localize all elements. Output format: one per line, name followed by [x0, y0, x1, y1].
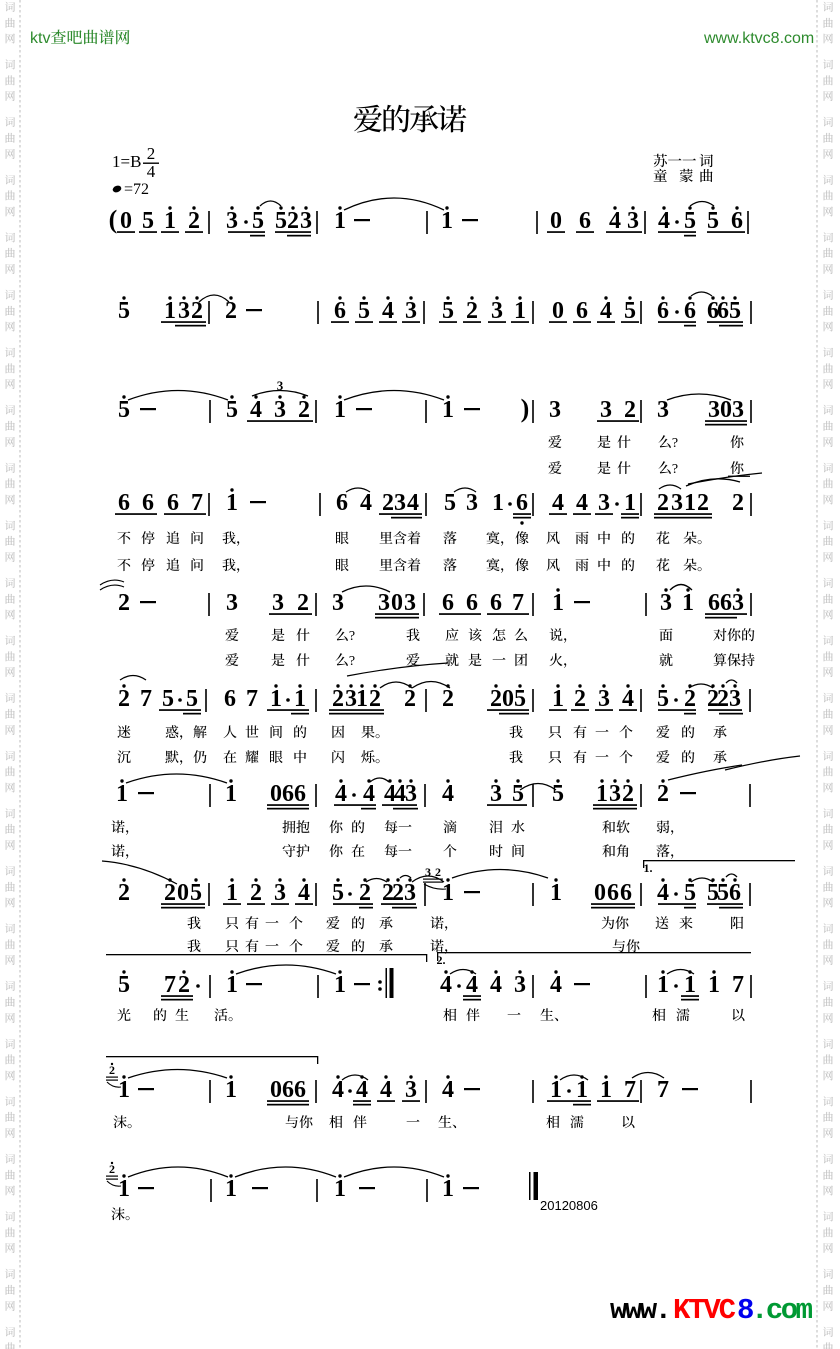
svg-text:曲: 曲	[5, 188, 16, 204]
svg-text:曲: 曲	[823, 72, 834, 88]
svg-text:1: 1	[514, 298, 526, 324]
svg-text:3: 3	[272, 590, 284, 616]
svg-text:网: 网	[5, 779, 16, 795]
svg-text:词: 词	[5, 287, 16, 303]
svg-text:像: 像	[515, 555, 529, 575]
svg-text:曲: 曲	[823, 1052, 834, 1068]
svg-text:一: 一	[265, 913, 279, 933]
svg-text:6: 6	[516, 490, 528, 516]
svg-text:2: 2	[382, 490, 394, 516]
svg-text:3: 3	[405, 781, 417, 807]
svg-text:诺，: 诺，	[111, 841, 139, 861]
svg-text:以: 以	[621, 1112, 635, 1132]
svg-text:2: 2	[191, 298, 203, 324]
svg-text:寞，: 寞，	[486, 528, 514, 548]
svg-text:个: 个	[289, 913, 303, 933]
svg-text:.com: .com	[751, 1294, 813, 1327]
svg-text:4: 4	[657, 880, 669, 906]
svg-text:词: 词	[5, 1209, 16, 1225]
svg-text:词: 词	[5, 460, 16, 476]
svg-text:2: 2	[287, 208, 299, 234]
svg-text:曲: 曲	[5, 303, 16, 319]
svg-text:以: 以	[731, 1005, 745, 1025]
svg-text:7: 7	[191, 490, 203, 516]
svg-text:词: 词	[5, 345, 16, 361]
svg-text:怎: 怎	[492, 625, 506, 645]
svg-text:4: 4	[335, 781, 347, 807]
svg-text:5: 5	[684, 880, 696, 906]
svg-text:3: 3	[732, 397, 744, 423]
svg-text:曲: 曲	[5, 360, 16, 376]
svg-text:为你: 为你	[601, 913, 629, 933]
svg-text:和角: 和角	[602, 841, 630, 861]
svg-text:闪: 闪	[331, 747, 345, 767]
svg-text:1: 1	[708, 972, 720, 998]
svg-text:有: 有	[573, 747, 587, 767]
svg-text:的: 的	[681, 722, 695, 742]
svg-text:网: 网	[823, 1183, 834, 1199]
svg-text:3: 3	[466, 490, 478, 516]
svg-text:光: 光	[117, 1005, 131, 1025]
svg-text:词: 词	[823, 460, 834, 476]
svg-text:一: 一	[595, 747, 609, 767]
svg-text:5: 5	[190, 880, 202, 906]
svg-text:面: 面	[659, 625, 673, 645]
svg-text:3: 3	[549, 397, 561, 423]
svg-text:3: 3	[178, 298, 190, 324]
svg-text:5: 5	[684, 208, 696, 234]
svg-text:网: 网	[823, 376, 834, 392]
svg-text:2: 2	[298, 397, 310, 423]
svg-text:5: 5	[657, 686, 669, 712]
svg-text:4: 4	[147, 162, 156, 181]
svg-text:网: 网	[5, 664, 16, 680]
svg-text:承: 承	[713, 722, 727, 742]
svg-text:网: 网	[823, 31, 834, 47]
svg-text:词: 词	[823, 1036, 834, 1052]
svg-text:诺，: 诺，	[430, 936, 458, 956]
svg-text:爱: 爱	[326, 936, 340, 956]
svg-text:5: 5	[442, 298, 454, 324]
svg-text:我，: 我，	[222, 555, 250, 575]
svg-text:3: 3	[274, 880, 286, 906]
svg-text:网: 网	[823, 261, 834, 277]
svg-text:3: 3	[405, 298, 417, 324]
svg-text:3: 3	[425, 865, 431, 879]
svg-text:曲: 曲	[5, 764, 16, 780]
svg-text:3: 3	[729, 686, 741, 712]
svg-text:曲: 曲	[823, 188, 834, 204]
svg-text:5: 5	[252, 208, 264, 234]
svg-text:词: 词	[5, 633, 16, 649]
svg-text:词: 词	[823, 748, 834, 764]
svg-text:承: 承	[713, 747, 727, 767]
svg-text:5: 5	[186, 686, 198, 712]
svg-text:生、: 生、	[540, 1005, 568, 1025]
svg-text:0: 0	[550, 208, 562, 234]
svg-text:6: 6	[294, 1077, 306, 1103]
svg-text:的: 的	[293, 722, 307, 742]
svg-text:个: 个	[619, 747, 633, 767]
svg-text:4: 4	[250, 397, 262, 423]
svg-text:网: 网	[823, 434, 834, 450]
svg-text:2: 2	[732, 490, 744, 516]
svg-text:1: 1	[624, 490, 636, 516]
svg-text:是: 是	[597, 458, 611, 478]
svg-text:爱: 爱	[326, 913, 340, 933]
svg-text:5: 5	[729, 298, 741, 324]
svg-text:2: 2	[435, 865, 441, 879]
svg-text:爱: 爱	[548, 458, 562, 478]
svg-text:词: 词	[5, 1266, 16, 1282]
svg-text:1: 1	[116, 781, 128, 807]
svg-text:0: 0	[594, 880, 606, 906]
svg-text:1: 1	[226, 490, 238, 516]
svg-text:承: 承	[379, 913, 393, 933]
svg-text:网: 网	[5, 1240, 16, 1256]
svg-text:3: 3	[490, 781, 502, 807]
svg-text:曲: 曲	[823, 1340, 834, 1349]
svg-text:来: 来	[679, 913, 693, 933]
svg-text:曲: 曲	[5, 245, 16, 261]
svg-text:我: 我	[187, 913, 201, 933]
svg-text:曲: 曲	[5, 72, 16, 88]
svg-text:词: 词	[5, 1036, 16, 1052]
svg-text:6: 6	[224, 686, 236, 712]
svg-text:团: 团	[514, 650, 528, 670]
svg-text:6: 6	[708, 590, 720, 616]
svg-text:曲: 曲	[823, 15, 834, 31]
svg-text:是: 是	[271, 650, 285, 670]
svg-text:6: 6	[167, 490, 179, 516]
svg-text:3: 3	[598, 490, 610, 516]
svg-text:曲: 曲	[5, 1052, 16, 1068]
svg-text:词: 词	[5, 57, 16, 73]
svg-text:词: 词	[5, 0, 16, 15]
svg-text:么: 么	[514, 625, 528, 645]
svg-text:曲: 曲	[5, 533, 16, 549]
svg-text:朵。: 朵。	[683, 555, 711, 575]
svg-text:3: 3	[274, 397, 286, 423]
svg-text:词: 词	[823, 402, 834, 418]
svg-text:1: 1	[684, 972, 696, 998]
svg-text:在: 在	[223, 747, 237, 767]
svg-text:滴: 滴	[443, 817, 457, 837]
svg-text:KTVC: KTVC	[673, 1294, 736, 1327]
svg-text:诺，: 诺，	[111, 817, 139, 837]
svg-text:词: 词	[5, 402, 16, 418]
svg-text:1: 1	[226, 880, 238, 906]
svg-text:网: 网	[5, 376, 16, 392]
svg-text:5: 5	[332, 880, 344, 906]
svg-text:词: 词	[823, 0, 834, 15]
svg-text:沫。: 沫。	[113, 1112, 141, 1132]
svg-text:词: 词	[5, 748, 16, 764]
svg-text:曲: 曲	[5, 476, 16, 492]
svg-text:应: 应	[445, 625, 459, 645]
svg-text:词: 词	[823, 345, 834, 361]
svg-text:词: 词	[823, 921, 834, 937]
svg-text:曲: 曲	[823, 303, 834, 319]
svg-text:3: 3	[598, 686, 610, 712]
svg-text:的: 的	[681, 747, 695, 767]
svg-text:像: 像	[515, 528, 529, 548]
svg-text:1: 1	[596, 781, 608, 807]
svg-text:网: 网	[5, 88, 16, 104]
svg-text:3: 3	[332, 590, 344, 616]
svg-text:6: 6	[717, 298, 729, 324]
svg-text:6: 6	[731, 208, 743, 234]
svg-text:3: 3	[394, 490, 406, 516]
svg-text:相: 相	[546, 1112, 560, 1132]
svg-text:6: 6	[684, 298, 696, 324]
svg-text:曲: 曲	[5, 130, 16, 146]
svg-text:1: 1	[682, 590, 694, 616]
svg-text:眼: 眼	[269, 747, 283, 767]
svg-text:相: 相	[443, 1005, 457, 1025]
svg-text:0: 0	[120, 208, 132, 234]
svg-text:沫。: 沫。	[111, 1204, 139, 1224]
svg-text:7: 7	[140, 686, 152, 712]
svg-text:词: 词	[823, 172, 834, 188]
svg-text:停: 停	[141, 528, 155, 548]
svg-text:网: 网	[5, 319, 16, 335]
svg-text:曲: 曲	[5, 15, 16, 31]
svg-text:6: 6	[282, 1077, 294, 1103]
svg-text:1: 1	[334, 397, 346, 423]
svg-text:个: 个	[619, 722, 633, 742]
svg-text:1: 1	[576, 1077, 588, 1103]
svg-text:5: 5	[707, 208, 719, 234]
svg-text:词: 词	[823, 805, 834, 821]
svg-text:耀: 耀	[245, 747, 259, 767]
svg-text:么?: 么?	[658, 432, 678, 452]
svg-text:3: 3	[671, 490, 683, 516]
svg-text:4: 4	[622, 686, 634, 712]
svg-text:曲: 曲	[5, 936, 16, 952]
svg-text:2: 2	[359, 880, 371, 906]
svg-text:曲: 曲	[823, 1282, 834, 1298]
svg-text:网: 网	[5, 146, 16, 162]
svg-text:词: 词	[5, 921, 16, 937]
svg-text:3: 3	[514, 972, 526, 998]
svg-text:1: 1	[492, 490, 504, 516]
svg-text:词: 词	[823, 229, 834, 245]
svg-text:6: 6	[576, 298, 588, 324]
svg-text:词: 词	[5, 1324, 16, 1340]
svg-text:说，: 说，	[549, 625, 577, 645]
svg-text:拥抱: 拥抱	[282, 817, 310, 837]
svg-text:1: 1	[334, 208, 346, 234]
svg-text:的: 的	[351, 936, 365, 956]
svg-text:只: 只	[225, 913, 239, 933]
svg-text:有: 有	[245, 913, 259, 933]
svg-text:2: 2	[118, 880, 130, 906]
svg-text:6: 6	[579, 208, 591, 234]
svg-text:1: 1	[550, 1077, 562, 1103]
svg-text:3: 3	[277, 378, 284, 393]
svg-text:6: 6	[607, 880, 619, 906]
svg-text:5: 5	[444, 490, 456, 516]
svg-text:曲: 曲	[5, 994, 16, 1010]
svg-text:网: 网	[5, 952, 16, 968]
svg-text:曲: 曲	[823, 130, 834, 146]
svg-text:5: 5	[717, 880, 729, 906]
svg-text:3: 3	[404, 590, 416, 616]
svg-text:1: 1	[442, 880, 454, 906]
svg-text:0: 0	[552, 298, 564, 324]
svg-text:网: 网	[823, 1240, 834, 1256]
svg-text:1: 1	[356, 686, 368, 712]
svg-text:4: 4	[332, 1077, 344, 1103]
svg-text:1: 1	[226, 972, 238, 998]
svg-text:网: 网	[823, 779, 834, 795]
svg-text:我，: 我，	[222, 528, 250, 548]
svg-text:4: 4	[658, 208, 670, 234]
svg-text:相: 相	[652, 1005, 666, 1025]
svg-text:网: 网	[823, 1067, 834, 1083]
svg-text:泪: 泪	[489, 817, 503, 837]
svg-text:1: 1	[334, 1176, 346, 1202]
svg-text:1: 1	[225, 781, 237, 807]
svg-text:曲: 曲	[823, 533, 834, 549]
svg-text:网: 网	[823, 837, 834, 853]
svg-text:不: 不	[117, 555, 131, 575]
svg-text:词: 词	[823, 863, 834, 879]
svg-text:曲: 曲	[5, 821, 16, 837]
svg-text:我: 我	[509, 747, 523, 767]
svg-text:3: 3	[609, 781, 621, 807]
svg-text:曲: 曲	[823, 591, 834, 607]
svg-text:4: 4	[363, 781, 375, 807]
svg-text:网: 网	[823, 664, 834, 680]
svg-text:曲: 曲	[823, 1167, 834, 1183]
svg-text:2: 2	[118, 686, 130, 712]
svg-text:一: 一	[595, 722, 609, 742]
svg-text:5: 5	[142, 208, 154, 234]
svg-text:爱: 爱	[225, 650, 239, 670]
svg-text:曲: 曲	[823, 418, 834, 434]
svg-text:时: 时	[489, 841, 503, 861]
svg-text:什: 什	[296, 625, 310, 645]
svg-text:与你: 与你	[285, 1112, 313, 1132]
svg-text:网: 网	[823, 1125, 834, 1141]
svg-text:2: 2	[717, 686, 729, 712]
svg-text:1: 1	[657, 972, 669, 998]
svg-text:不: 不	[117, 528, 131, 548]
svg-text:3: 3	[404, 880, 416, 906]
svg-text:网: 网	[5, 1298, 16, 1314]
svg-text:你: 你	[329, 817, 343, 837]
svg-text:3: 3	[657, 397, 669, 423]
svg-text:你: 你	[329, 841, 343, 861]
svg-text:2: 2	[369, 686, 381, 712]
svg-text:网: 网	[823, 895, 834, 911]
svg-text:曲: 曲	[5, 648, 16, 664]
svg-text:伴: 伴	[353, 1112, 367, 1132]
svg-text:算保持: 算保持	[713, 650, 755, 670]
svg-text:网: 网	[5, 434, 16, 450]
svg-text:1: 1	[550, 880, 562, 906]
svg-text:爱: 爱	[656, 747, 670, 767]
svg-text:3: 3	[660, 590, 672, 616]
svg-text:0: 0	[720, 397, 732, 423]
svg-text:里含着: 里含着	[379, 555, 421, 575]
svg-text:个: 个	[289, 936, 303, 956]
svg-text:对你的: 对你的	[713, 625, 755, 645]
svg-text:落，: 落，	[656, 841, 684, 861]
svg-text:5: 5	[624, 298, 636, 324]
svg-text:网: 网	[5, 895, 16, 911]
svg-text:伴: 伴	[466, 1005, 480, 1025]
svg-text:3: 3	[405, 1077, 417, 1103]
svg-text:你: 你	[730, 432, 744, 452]
svg-text:): )	[521, 394, 530, 423]
svg-text:6: 6	[294, 781, 306, 807]
svg-text:3: 3	[732, 590, 744, 616]
svg-text:只: 只	[548, 747, 562, 767]
svg-text:网: 网	[823, 491, 834, 507]
svg-text:网: 网	[823, 549, 834, 565]
svg-text:词: 词	[823, 1324, 834, 1340]
svg-text:词: 词	[5, 172, 16, 188]
svg-text:6: 6	[720, 590, 732, 616]
svg-text:一: 一	[406, 1112, 420, 1132]
svg-text:一: 一	[265, 936, 279, 956]
svg-text:1: 1	[270, 686, 282, 712]
svg-text:有: 有	[245, 936, 259, 956]
svg-text:只: 只	[548, 722, 562, 742]
svg-text:朵。: 朵。	[683, 528, 711, 548]
svg-text:迷: 迷	[117, 722, 131, 742]
svg-text:网: 网	[5, 1183, 16, 1199]
svg-text:弱，: 弱，	[656, 817, 684, 837]
svg-text:6: 6	[334, 298, 346, 324]
svg-text:0: 0	[270, 1077, 282, 1103]
svg-text:3: 3	[708, 397, 720, 423]
svg-text:曲: 曲	[823, 1109, 834, 1125]
svg-text:曲: 曲	[823, 360, 834, 376]
svg-text:1: 1	[552, 590, 564, 616]
svg-text:词: 词	[823, 690, 834, 706]
svg-text:1: 1	[164, 298, 176, 324]
svg-text:就: 就	[659, 650, 673, 670]
svg-text:2: 2	[657, 490, 669, 516]
svg-text:寞，: 寞，	[486, 555, 514, 575]
svg-text:词: 词	[823, 633, 834, 649]
svg-text:5: 5	[118, 397, 130, 423]
svg-text:词: 词	[5, 805, 16, 821]
svg-text:什: 什	[617, 432, 631, 452]
svg-text:曲: 曲	[5, 1340, 16, 1349]
svg-text:网: 网	[823, 607, 834, 623]
svg-text:词: 词	[5, 1093, 16, 1109]
svg-text:烁。: 烁。	[361, 747, 389, 767]
svg-text:网: 网	[823, 722, 834, 738]
svg-text:我: 我	[406, 625, 420, 645]
svg-text:4: 4	[407, 490, 419, 516]
svg-text:守护: 守护	[282, 841, 310, 861]
svg-text:6: 6	[282, 781, 294, 807]
svg-text:相: 相	[329, 1112, 343, 1132]
svg-text:网: 网	[5, 491, 16, 507]
svg-text:曲: 曲	[5, 1109, 16, 1125]
svg-text:曲: 曲	[5, 1224, 16, 1240]
svg-text:6: 6	[466, 590, 478, 616]
svg-text:风: 风	[546, 555, 560, 575]
svg-text:默，仍: 默，仍	[165, 747, 207, 767]
svg-text:5: 5	[118, 298, 130, 324]
